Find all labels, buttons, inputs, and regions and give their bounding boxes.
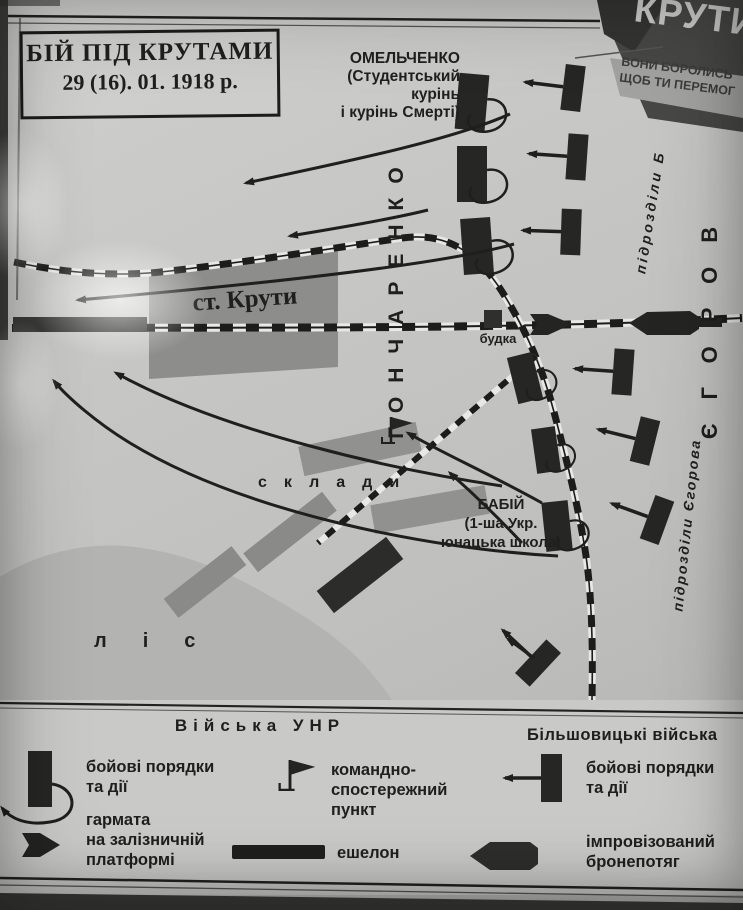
unr-unit-symbol xyxy=(457,146,507,203)
legend-unr-unit-symbol xyxy=(28,751,52,807)
forest-area xyxy=(0,546,392,700)
bolshevik-unit-symbol xyxy=(604,482,674,545)
babiy-label: БАБІЙ (1-ша Укр. юнацька школа) xyxy=(430,495,572,552)
legend-bolshevik-unit-symbol xyxy=(541,754,562,802)
legend-echelon-symbol xyxy=(232,845,325,859)
legend-unr-header: Війська УНР xyxy=(160,716,360,736)
echelon-train-symbol xyxy=(13,317,147,332)
legend-armored-train-label: імпровізований бронепотяг xyxy=(586,832,715,872)
bolshevik-unit-symbol xyxy=(528,131,589,181)
legend-unr-combat-label: бойові порядки та дії xyxy=(86,757,214,797)
title-box: БІЙ ПІД КРУТАМИ 29 (16). 01. 1918 р. xyxy=(20,29,281,120)
map-title: БІЙ ПІД КРУТАМИ xyxy=(23,38,277,69)
unr-unit-symbol xyxy=(531,424,577,475)
honcharenko-label: ГОНЧАРЕНКО xyxy=(385,146,409,446)
bolshevik-unit-symbol xyxy=(523,59,586,112)
bolshevik-unit-symbol xyxy=(522,207,582,255)
bolshevik-unit-symbol xyxy=(574,346,635,396)
omelchenko-label: ОМЕЛЬЧЕНКО (Студентський курінь і курінь… xyxy=(300,50,460,122)
battle-map-photo: БІЙ ПІД КРУТАМИ 29 (16). 01. 1918 р. ОМЕ… xyxy=(0,0,743,910)
yehorov-label: ЄГОРОВ xyxy=(697,201,723,441)
legend-echelon-label: ешелон xyxy=(337,843,399,863)
sklady-label: склади xyxy=(258,474,416,492)
legend-bolshevik-header: Більшовицькі війська xyxy=(527,726,718,745)
legend-cannon-label: гармата на залізничній платформі xyxy=(86,810,205,870)
lis-label: ліс xyxy=(94,630,231,653)
legend-command-post-label: командно- спостережний пункт xyxy=(331,760,447,820)
budka-label: будка xyxy=(466,331,530,346)
bolshevik-unit-symbol xyxy=(593,407,660,466)
budka-building xyxy=(484,310,502,328)
legend-bolshevik-combat-label: бойові порядки та дії xyxy=(586,758,714,798)
map-date: 29 (16). 01. 1918 р. xyxy=(23,68,277,97)
